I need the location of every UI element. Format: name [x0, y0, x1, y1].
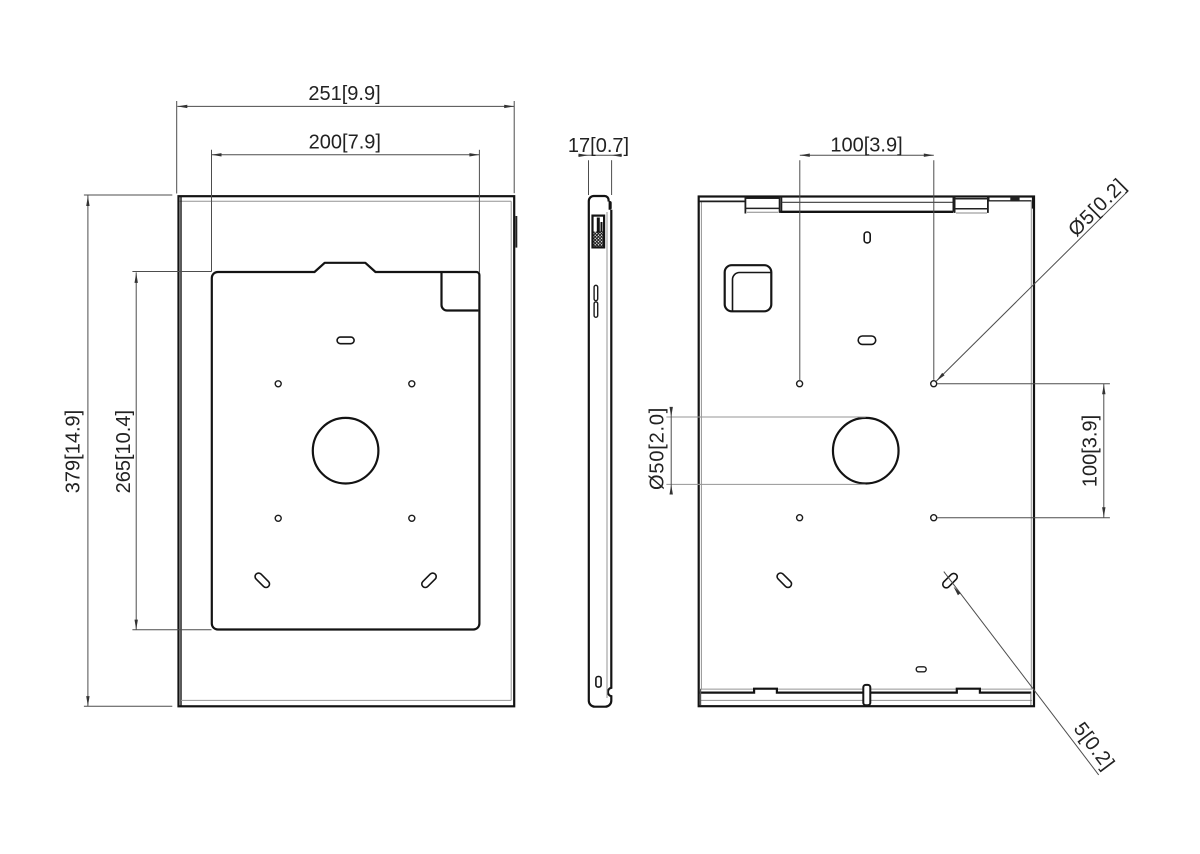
svg-text:17[0.7]: 17[0.7] — [568, 135, 629, 157]
svg-text:200[7.9]: 200[7.9] — [309, 132, 381, 154]
svg-text:379[14.9]: 379[14.9] — [62, 410, 84, 493]
svg-text:265[10.4]: 265[10.4] — [113, 410, 135, 493]
svg-text:100[3.9]: 100[3.9] — [1079, 415, 1101, 487]
svg-text:251[9.9]: 251[9.9] — [308, 83, 380, 105]
svg-text:Ø50[2.0]: Ø50[2.0] — [647, 407, 669, 490]
svg-text:100[3.9]: 100[3.9] — [830, 135, 902, 157]
